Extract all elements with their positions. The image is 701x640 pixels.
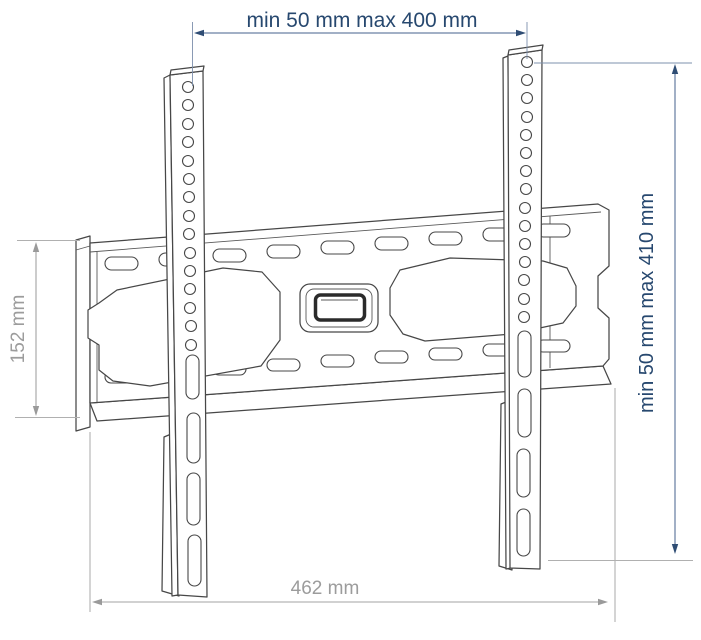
left-vesa-rail [162,66,207,597]
dim-bottom-label: 462 mm [291,578,360,599]
dim-left: 152 mm [8,241,80,418]
diagram-canvas: min 50 mm max 400 mm min 50 mm max 410 m… [0,0,701,640]
right-vesa-rail [499,45,543,570]
dim-top-label: min 50 mm max 400 mm [246,9,477,32]
dim-right-label: min 50 mm max 410 mm [636,193,658,413]
dim-top: min 50 mm max 400 mm [193,9,528,86]
bubble-level [300,284,378,332]
dim-left-label: 152 mm [8,295,29,364]
